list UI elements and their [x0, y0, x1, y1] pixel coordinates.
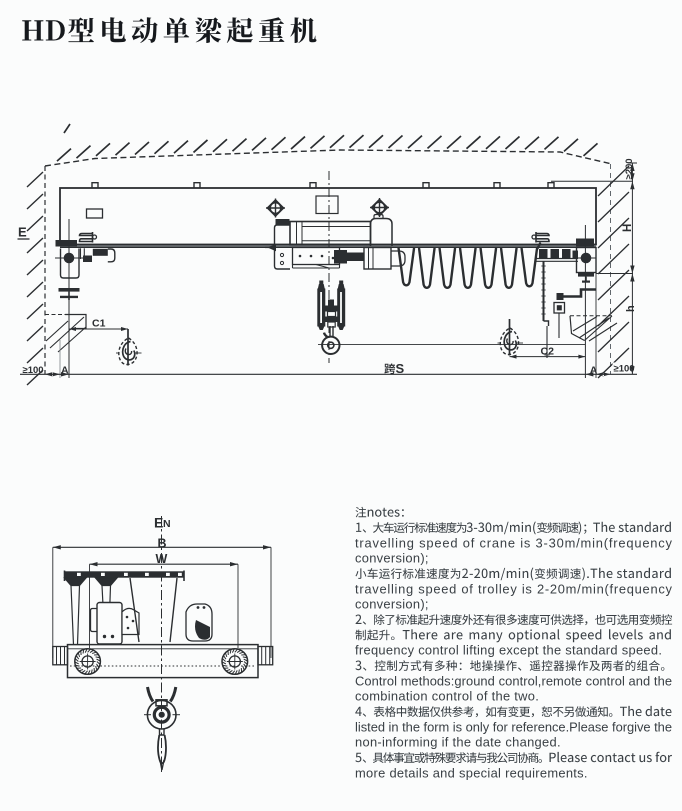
svg-text:S: S — [396, 361, 405, 376]
svg-text:A: A — [61, 365, 69, 377]
svg-text:≥200: ≥200 — [624, 158, 635, 179]
svg-text:H: H — [622, 224, 634, 232]
svg-text:C1: C1 — [92, 318, 106, 330]
svg-text:frequency control lifting exce: frequency control lifting except the sta… — [355, 643, 662, 658]
svg-text:travelling speed of trolley is: travelling speed of trolley is 2-20m/min… — [355, 581, 673, 596]
svg-text:listed in the form is only for: listed in the form is only for reference… — [355, 719, 672, 734]
svg-text:non-informing if the date chan: non-informing if the date changed. — [355, 735, 561, 750]
svg-text:B: B — [158, 537, 167, 551]
svg-text:C2: C2 — [541, 346, 555, 358]
svg-text:h: h — [625, 305, 637, 312]
svg-text:travelling speed of crane is 3: travelling speed of crane is 3-30m/min(f… — [355, 535, 673, 550]
svg-text:E: E — [18, 225, 27, 240]
svg-text:Control methods:ground control: Control methods:ground control,remote co… — [355, 673, 672, 688]
svg-text:combination control of the two: combination control of the two. — [355, 689, 539, 704]
svg-text:conversion);: conversion); — [355, 597, 429, 612]
svg-text:≥100: ≥100 — [23, 365, 44, 376]
svg-text:more details and special requi: more details and special requirements. — [355, 765, 588, 780]
svg-text:N: N — [163, 518, 171, 530]
svg-text:A: A — [590, 365, 598, 377]
svg-text:conversion);: conversion); — [355, 551, 429, 566]
